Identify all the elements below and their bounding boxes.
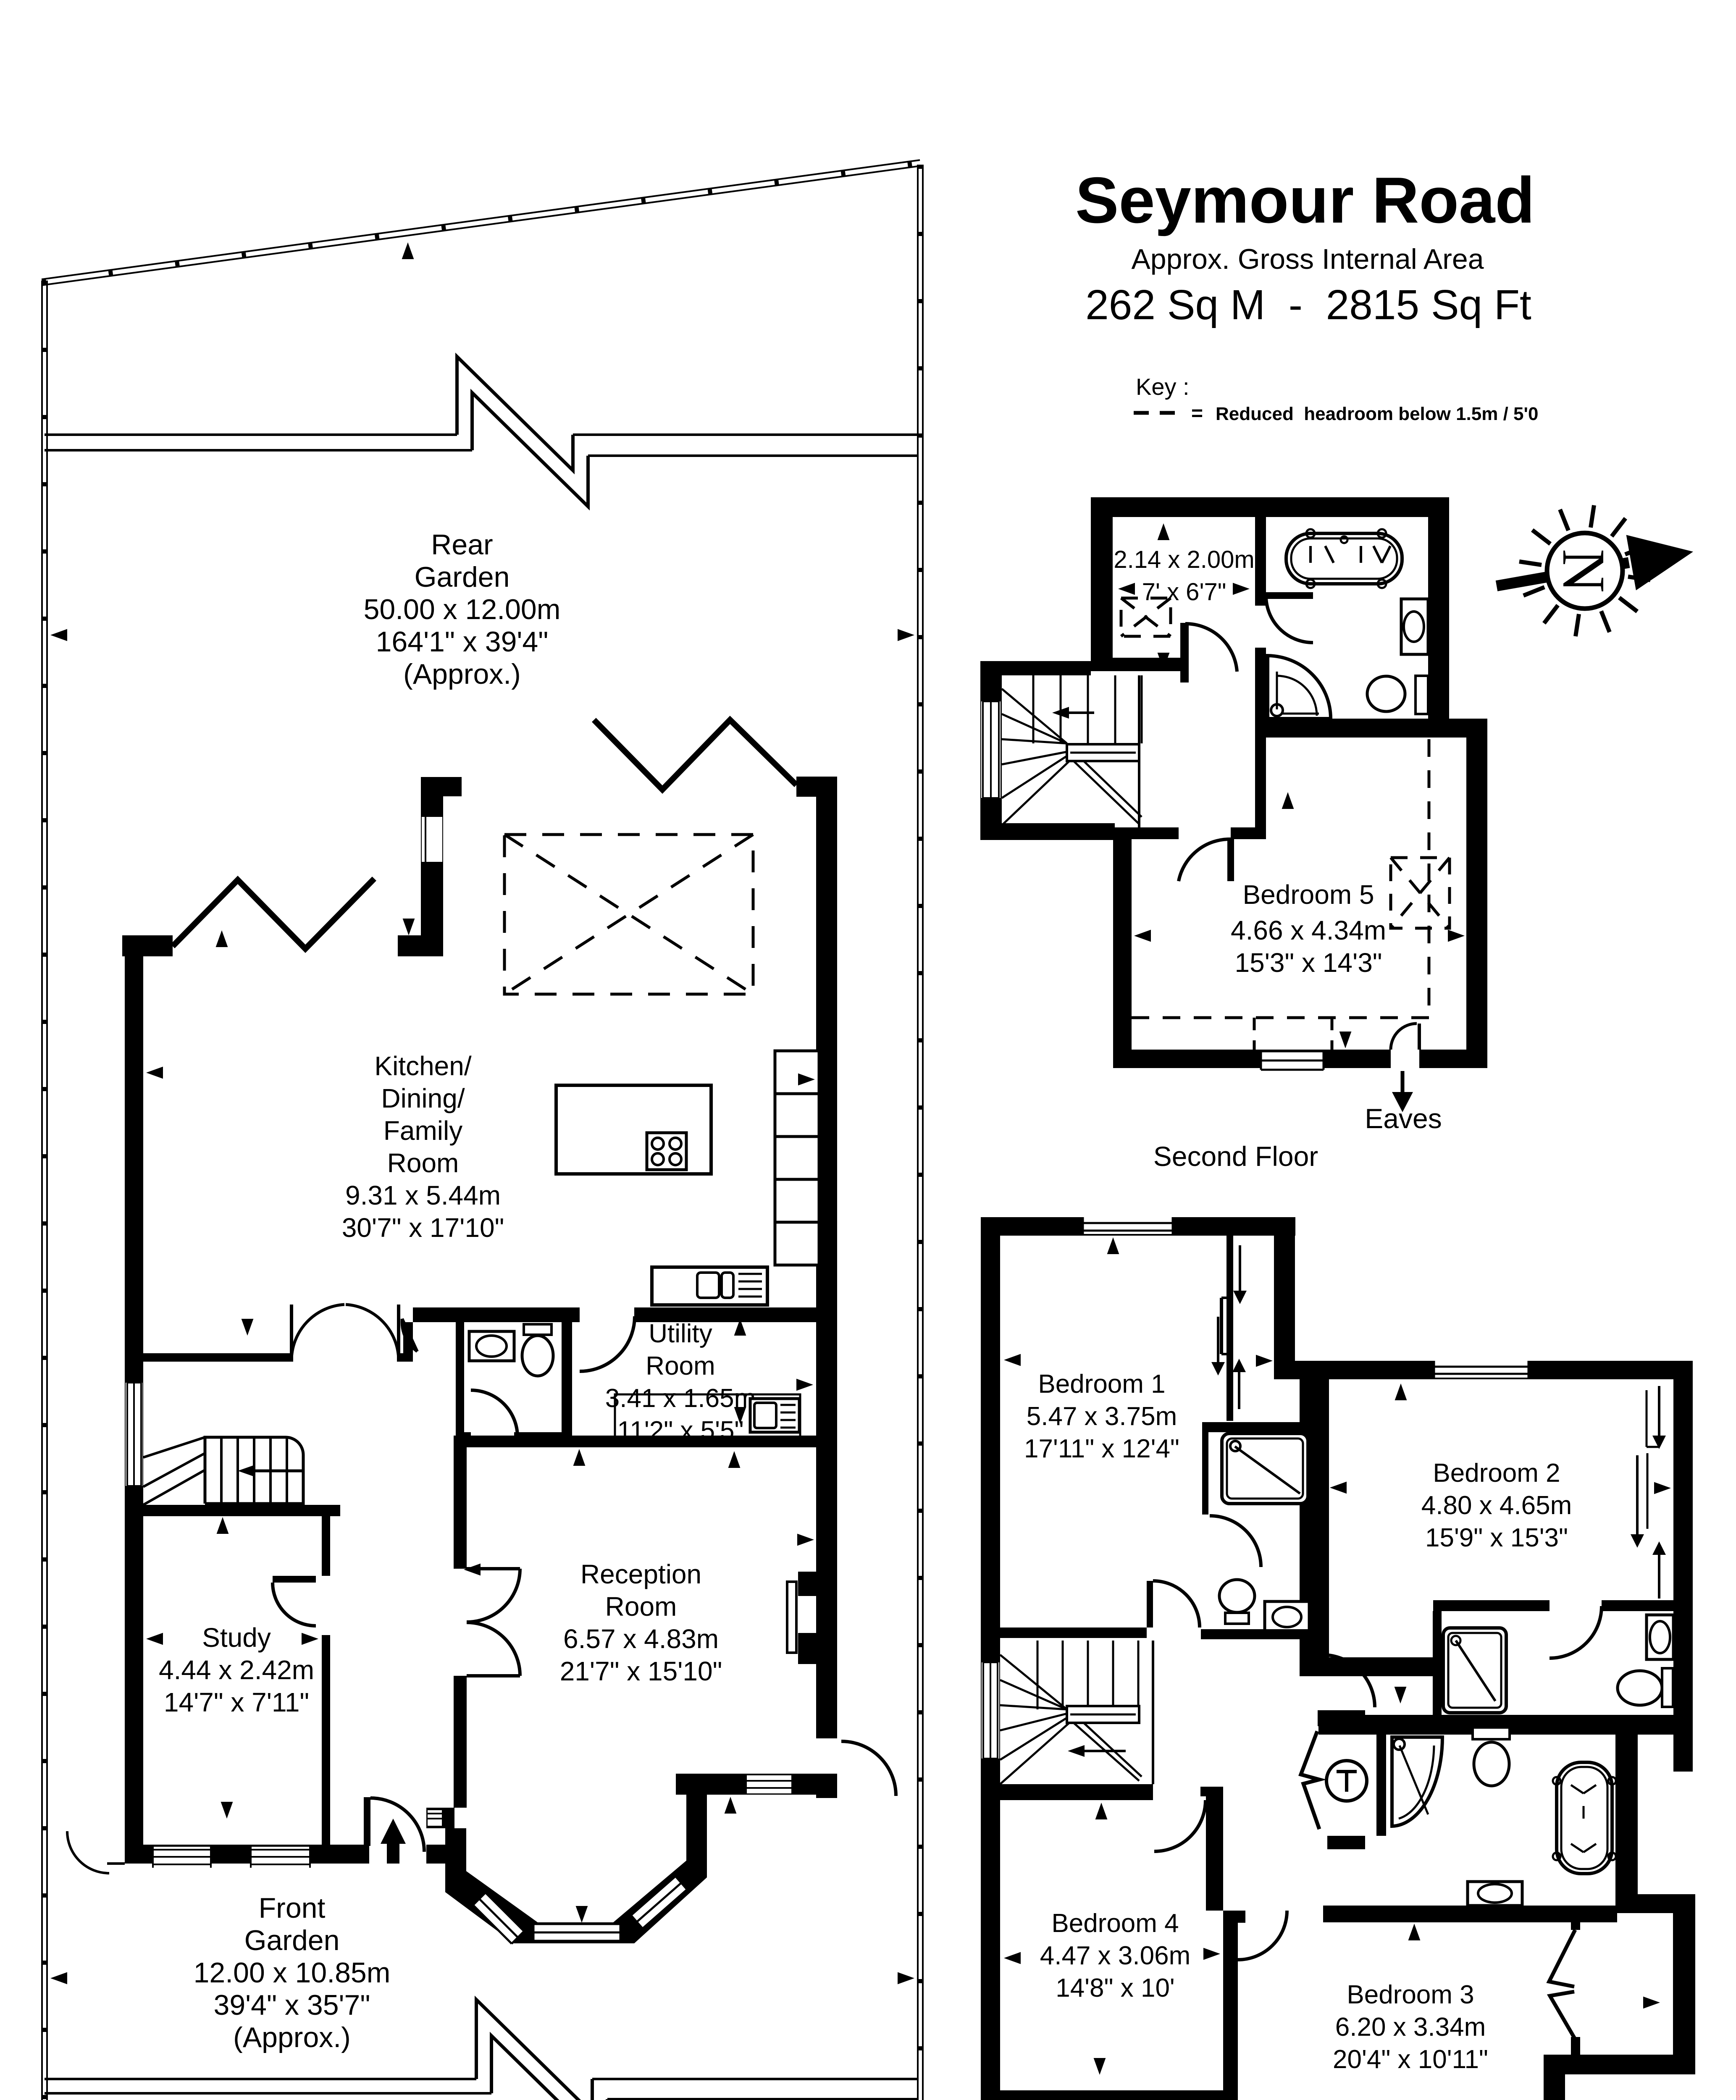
- svg-text:39'4" x 35'7": 39'4" x 35'7": [214, 1989, 370, 2021]
- svg-text:Eaves: Eaves: [1365, 1103, 1442, 1134]
- svg-text:Kitchen/: Kitchen/: [374, 1051, 471, 1081]
- svg-text:15'9" x 15'3": 15'9" x 15'3": [1425, 1523, 1568, 1552]
- svg-text:Front: Front: [259, 1892, 326, 1924]
- svg-text:=: =: [1191, 402, 1203, 425]
- svg-text:Garden: Garden: [415, 561, 510, 593]
- svg-text:6.20 x 3.34m: 6.20 x 3.34m: [1335, 2013, 1486, 2042]
- svg-text:9.31 x 5.44m: 9.31 x 5.44m: [345, 1180, 501, 1210]
- svg-text:Bedroom 4: Bedroom 4: [1051, 1909, 1179, 1938]
- svg-text:21'7" x 15'10": 21'7" x 15'10": [560, 1656, 722, 1686]
- svg-text:6.57 x 4.83m: 6.57 x 4.83m: [563, 1624, 719, 1654]
- svg-text:Utility: Utility: [649, 1319, 712, 1348]
- svg-text:50.00 x 12.00m: 50.00 x 12.00m: [364, 593, 561, 625]
- svg-text:164'1" x 39'4": 164'1" x 39'4": [376, 626, 549, 658]
- svg-text:4.47 x 3.06m: 4.47 x 3.06m: [1040, 1941, 1190, 1970]
- svg-text:(Approx.): (Approx.): [403, 658, 521, 690]
- svg-text:Study: Study: [202, 1622, 271, 1653]
- svg-text:Reduced headroom below 1.5m /: Reduced headroom below 1.5m / 5'0: [1216, 404, 1538, 424]
- svg-text:3.41 x 1.65m: 3.41 x 1.65m: [605, 1384, 756, 1413]
- svg-text:7' x 6'7": 7' x 6'7": [1142, 578, 1226, 606]
- svg-text:Approx. Gross Internal Area: Approx. Gross Internal Area: [1131, 243, 1484, 275]
- svg-text:Reception: Reception: [580, 1559, 701, 1589]
- svg-text:Garden: Garden: [244, 1924, 340, 1956]
- svg-text:12.00 x 10.85m: 12.00 x 10.85m: [194, 1957, 391, 1989]
- svg-text:Room: Room: [387, 1148, 459, 1178]
- svg-text:Key :: Key :: [1136, 373, 1190, 400]
- svg-text:14'7" x 7'11": 14'7" x 7'11": [164, 1687, 309, 1717]
- svg-text:2.14 x 2.00m: 2.14 x 2.00m: [1114, 546, 1254, 573]
- svg-text:Rear: Rear: [431, 529, 493, 561]
- svg-text:N: N: [1550, 549, 1617, 593]
- svg-text:14'8" x 10': 14'8" x 10': [1056, 1974, 1175, 2003]
- svg-text:4.44 x 2.42m: 4.44 x 2.42m: [159, 1655, 314, 1685]
- svg-text:Bedroom 2: Bedroom 2: [1433, 1459, 1560, 1488]
- svg-text:Bedroom 5: Bedroom 5: [1242, 879, 1374, 910]
- svg-text:(Approx.): (Approx.): [233, 2021, 351, 2053]
- svg-text:30'7" x 17'10": 30'7" x 17'10": [342, 1213, 504, 1243]
- svg-text:Seymour Road: Seymour Road: [1075, 164, 1535, 236]
- svg-text:5.47 x 3.75m: 5.47 x 3.75m: [1027, 1402, 1177, 1431]
- svg-text:Room: Room: [646, 1352, 715, 1381]
- svg-text:4.80 x 4.65m: 4.80 x 4.65m: [1421, 1491, 1572, 1520]
- svg-text:262 Sq M - 2815 Sq Ft: 262 Sq M - 2815 Sq Ft: [1085, 281, 1531, 328]
- svg-text:17'11" x 12'4": 17'11" x 12'4": [1024, 1434, 1179, 1463]
- svg-text:20'4" x 10'11": 20'4" x 10'11": [1333, 2045, 1488, 2074]
- svg-text:4.66 x 4.34m: 4.66 x 4.34m: [1231, 915, 1386, 945]
- svg-text:Second Floor: Second Floor: [1153, 1141, 1318, 1172]
- svg-text:15'3" x 14'3": 15'3" x 14'3": [1235, 948, 1382, 978]
- svg-text:Bedroom 1: Bedroom 1: [1038, 1370, 1165, 1399]
- svg-text:Dining/: Dining/: [381, 1083, 465, 1113]
- svg-text:Bedroom 3: Bedroom 3: [1347, 1980, 1474, 2009]
- svg-text:Family: Family: [383, 1116, 462, 1146]
- svg-text:Room: Room: [605, 1591, 677, 1622]
